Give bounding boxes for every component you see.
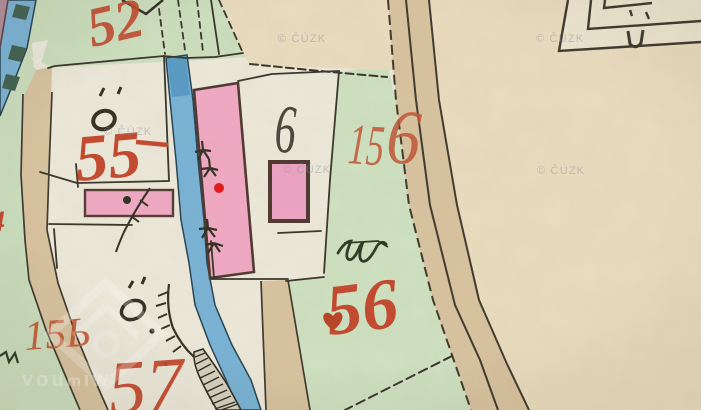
svg-text:© ČÚZK: © ČÚZK bbox=[283, 163, 331, 176]
svg-text:© ČÚZK: © ČÚZK bbox=[278, 32, 326, 45]
svg-text:© ČÚZK: © ČÚZK bbox=[537, 164, 585, 177]
svg-text:© ČÚZK: © ČÚZK bbox=[536, 32, 584, 45]
svg-text:© ČÚZK: © ČÚZK bbox=[104, 125, 152, 138]
